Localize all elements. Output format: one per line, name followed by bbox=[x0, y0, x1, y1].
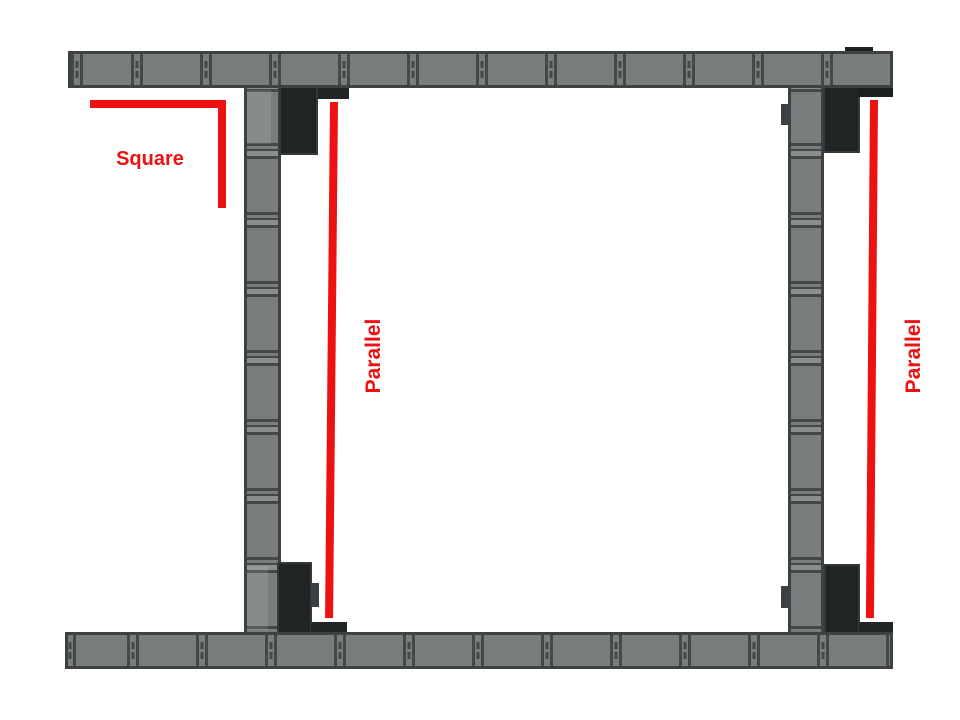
highlight-left-upright-bottom bbox=[247, 566, 268, 630]
gusset-bottom-right bbox=[824, 564, 860, 634]
rail-segment-ticks bbox=[68, 652, 890, 659]
square-angle-marker-horizontal bbox=[90, 100, 226, 108]
standoff-tab-bottom-right bbox=[781, 586, 789, 608]
bottom-rail-channel bbox=[65, 632, 893, 669]
rail-segment-ticks bbox=[71, 61, 890, 68]
frame-diagram: Square Parallel Parallel bbox=[0, 0, 960, 720]
square-label: Square bbox=[104, 146, 196, 172]
standoff-tab-bottom-left bbox=[311, 583, 319, 607]
gusset-bottom-left bbox=[277, 562, 312, 634]
parallel-label-left: Parallel bbox=[361, 296, 387, 416]
gusset-strap-top-left bbox=[318, 88, 349, 99]
parallel-line-left bbox=[325, 102, 338, 618]
standoff-tab-top-right bbox=[781, 104, 789, 125]
gusset-strap-top-right bbox=[858, 88, 893, 97]
highlight-left-upright-top bbox=[247, 90, 271, 144]
gusset-top-right bbox=[823, 84, 860, 153]
top-rail-channel bbox=[68, 51, 893, 88]
rail-segment-ticks bbox=[68, 642, 890, 649]
left-upright-channel bbox=[244, 86, 281, 636]
rail-segment-ticks bbox=[71, 71, 890, 78]
gusset-top-left bbox=[279, 86, 318, 155]
square-angle-marker-vertical bbox=[218, 100, 226, 208]
parallel-line-right bbox=[866, 100, 878, 618]
parallel-label-right: Parallel bbox=[901, 296, 927, 416]
right-upright-channel bbox=[788, 86, 824, 636]
